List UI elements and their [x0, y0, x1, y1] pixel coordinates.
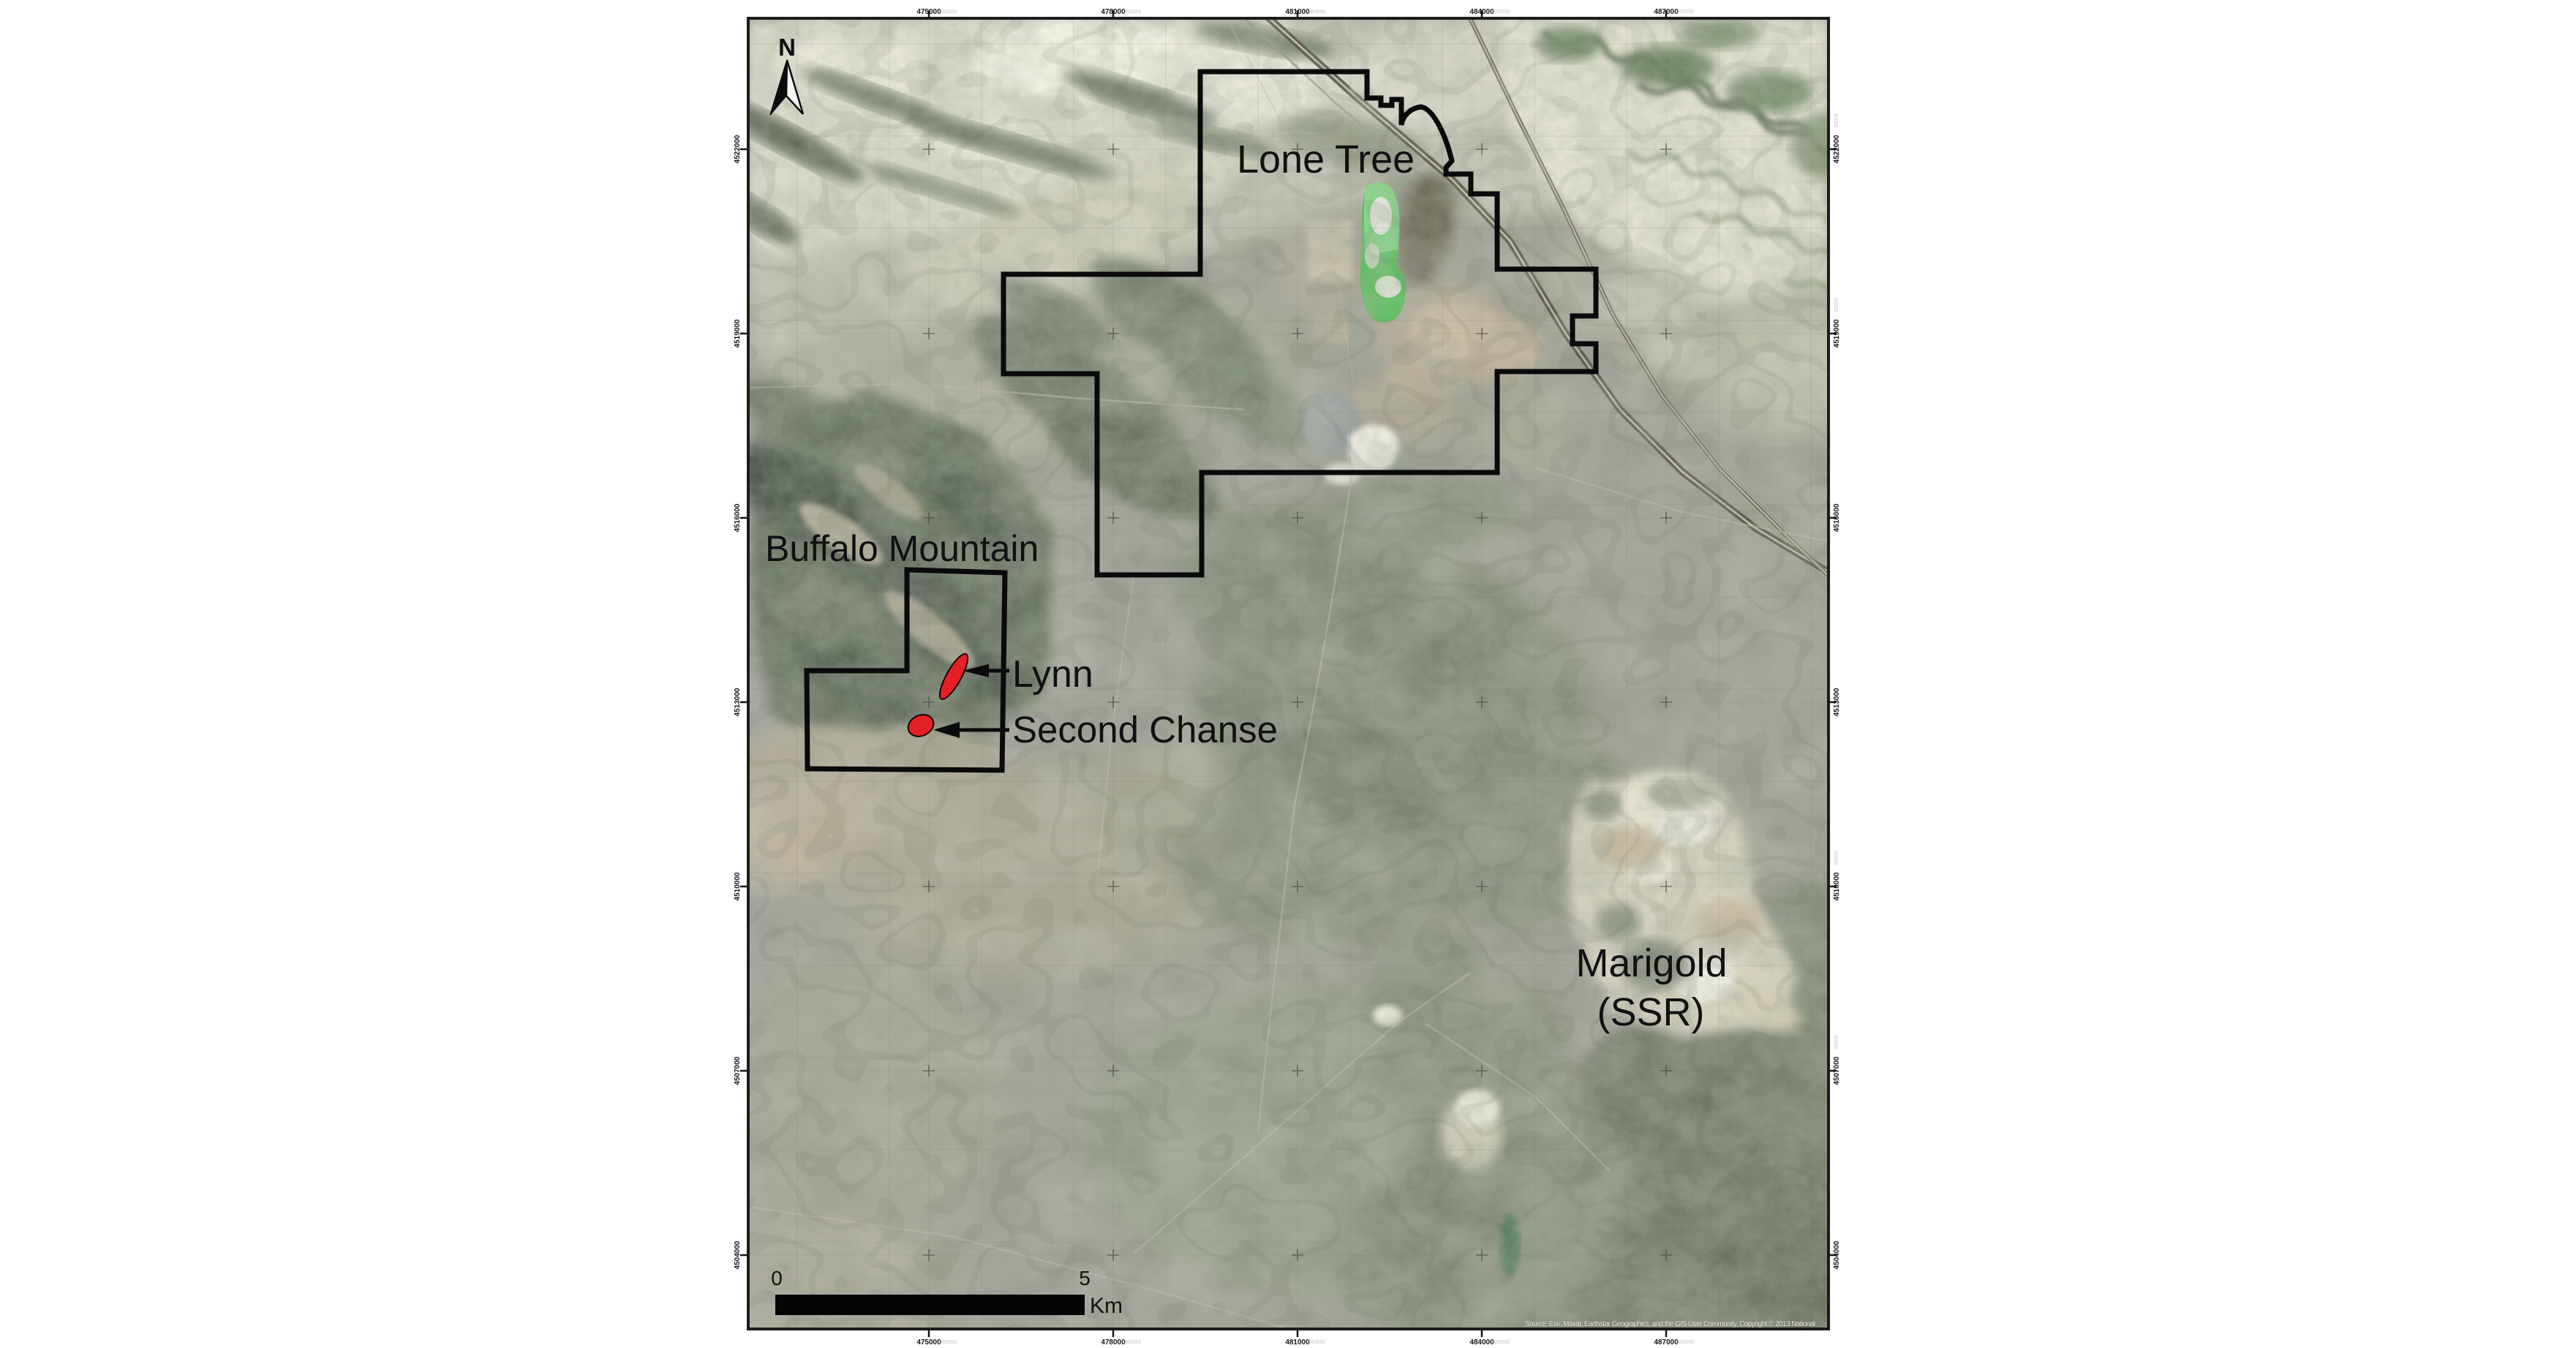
svg-text:484000: 484000: [1469, 1338, 1494, 1347]
svg-text:20000: 20000: [1834, 1035, 1839, 1050]
svg-text:20000: 20000: [1834, 113, 1839, 128]
svg-text:Source: Esri, Maxar, Earthstar: Source: Esri, Maxar, Earthstar Geographi…: [1525, 1320, 1815, 1328]
svg-text:366000: 366000: [1677, 1340, 1694, 1345]
svg-text:481000: 481000: [1285, 1338, 1310, 1347]
svg-text:362000: 362000: [940, 1340, 957, 1345]
svg-text:364000: 364000: [1308, 1340, 1325, 1345]
svg-text:0: 0: [771, 1267, 783, 1289]
svg-text:362000: 362000: [940, 10, 957, 15]
svg-text:363000: 363000: [1124, 1340, 1141, 1345]
svg-text:5: 5: [1079, 1267, 1091, 1289]
svg-text:Lone Tree: Lone Tree: [1237, 138, 1415, 181]
svg-text:Marigold: Marigold: [1575, 941, 1727, 985]
svg-text:Lynn: Lynn: [1012, 653, 1093, 696]
svg-text:365000: 365000: [1493, 1340, 1510, 1345]
svg-text:Buffalo Mountain: Buffalo Mountain: [765, 528, 1039, 569]
svg-text:475000: 475000: [916, 1338, 941, 1347]
svg-text:Km: Km: [1090, 1294, 1123, 1318]
svg-text:487000: 487000: [1654, 1338, 1679, 1347]
svg-text:20000: 20000: [1834, 298, 1839, 312]
svg-text:366000: 366000: [1677, 10, 1694, 15]
svg-text:(SSR): (SSR): [1597, 990, 1705, 1034]
svg-text:365000: 365000: [1493, 10, 1510, 15]
svg-text:363000: 363000: [1124, 10, 1141, 15]
svg-text:364000: 364000: [1308, 10, 1325, 15]
svg-text:Second Chanse: Second Chanse: [1012, 709, 1278, 750]
svg-text:478000: 478000: [1101, 1338, 1126, 1347]
svg-text:20000: 20000: [1834, 851, 1839, 865]
svg-text:N: N: [778, 34, 796, 61]
